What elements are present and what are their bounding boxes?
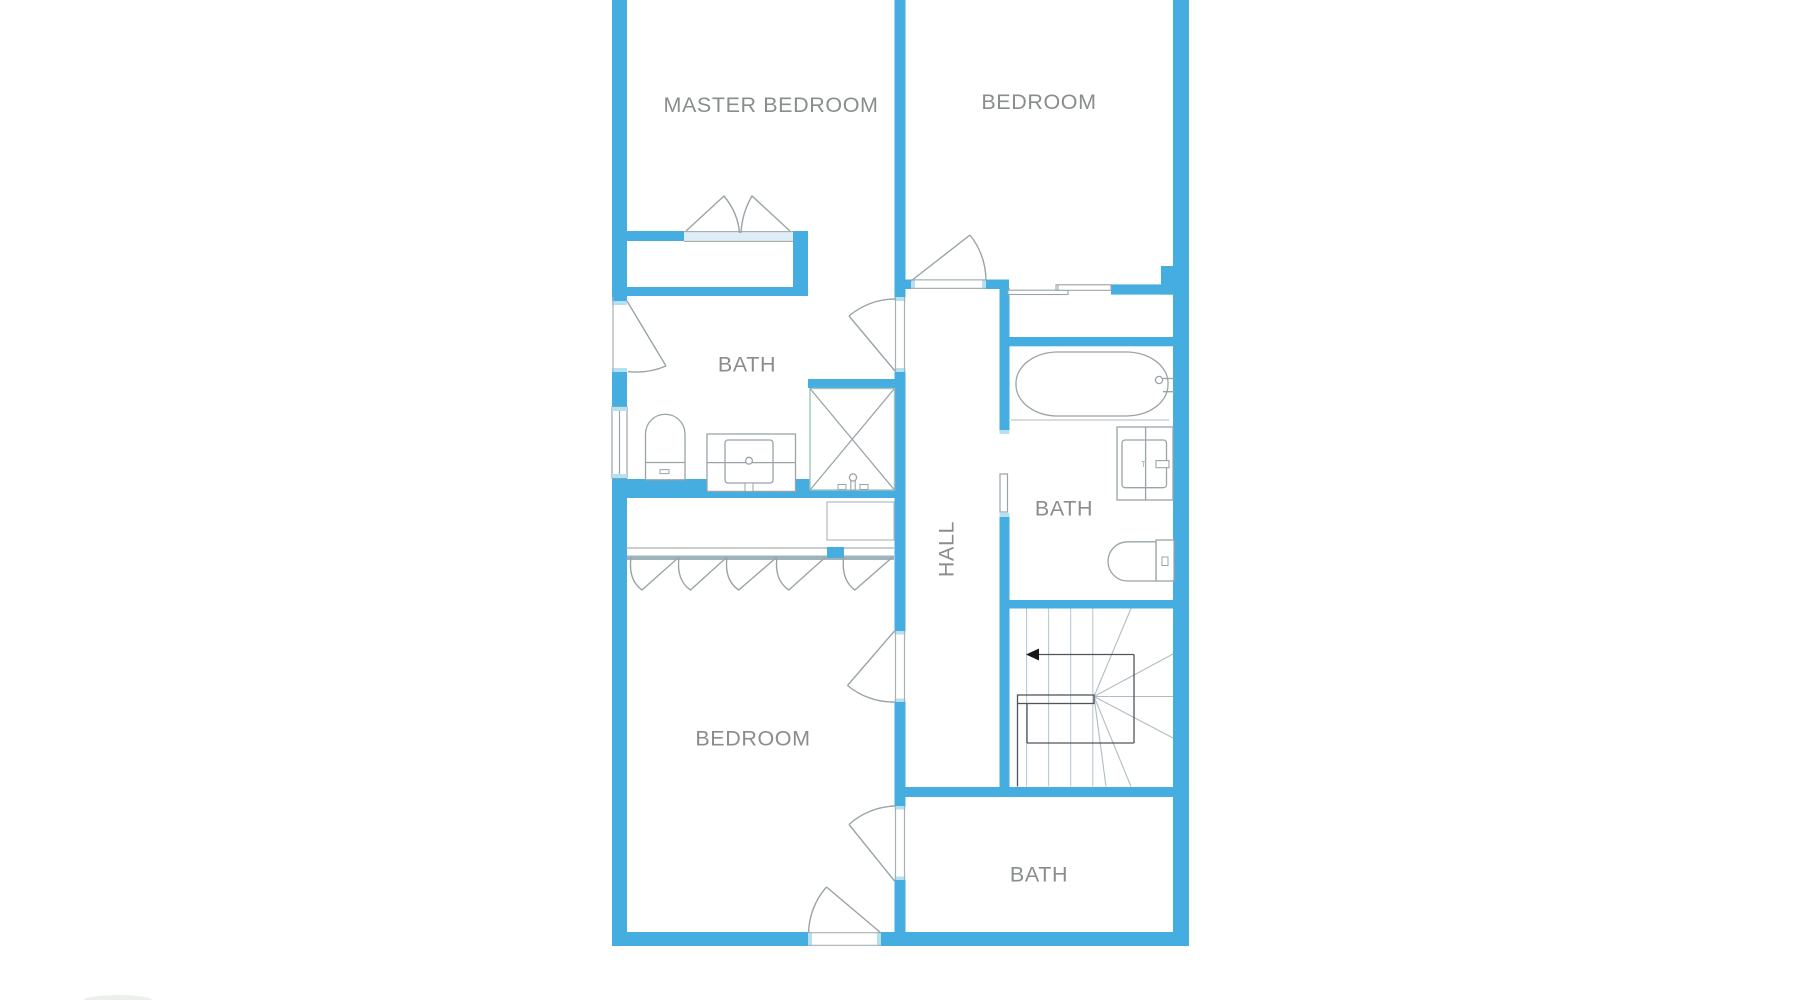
svg-text:HALL: HALL	[935, 521, 959, 577]
svg-text:BATH: BATH	[718, 353, 776, 377]
svg-text:BEDROOM: BEDROOM	[981, 90, 1096, 114]
svg-text:BEDROOM: BEDROOM	[695, 727, 810, 751]
svg-text:BATH: BATH	[1010, 863, 1068, 887]
svg-text:MASTER BEDROOM: MASTER BEDROOM	[663, 93, 878, 117]
svg-text:BATH: BATH	[1035, 497, 1093, 521]
